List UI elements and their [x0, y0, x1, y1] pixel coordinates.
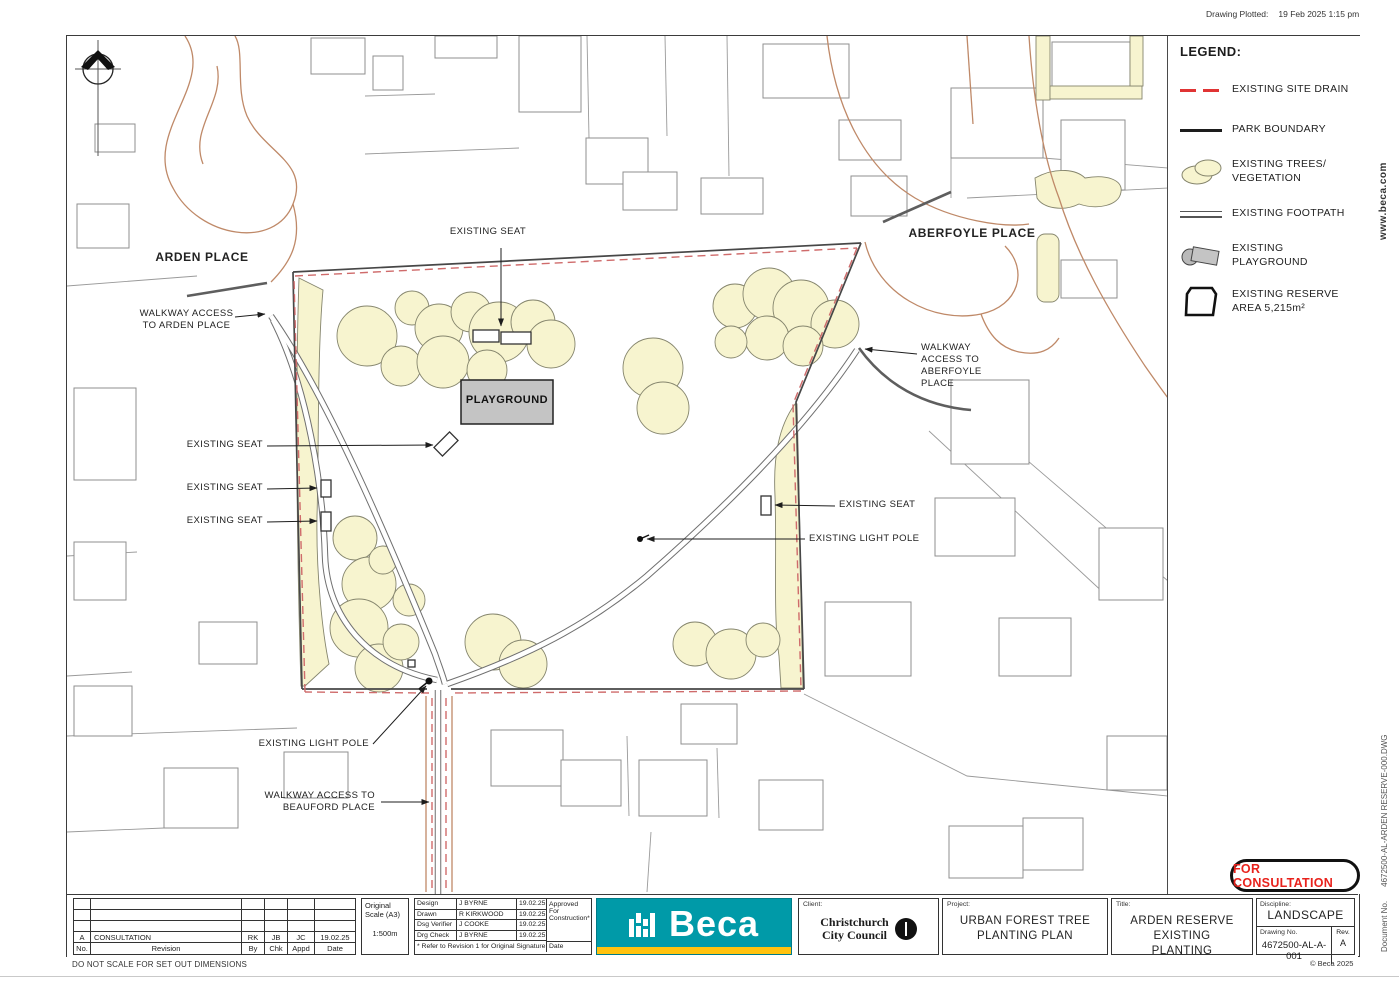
document-no-value: 4672500-AL-ARDEN RESERVE-000.DWG	[1380, 735, 1389, 887]
label-existing-seat-top: EXISTING SEAT	[438, 226, 538, 238]
document-no-label: Document No.	[1380, 901, 1389, 952]
scale-value: 1:500m	[365, 929, 405, 938]
legend-item-trees: EXISTING TREES/ VEGETATION	[1180, 157, 1361, 187]
label-walkway-beauford: WALKWAY ACCESS TO BEAUFORD PLACE	[245, 790, 375, 814]
beca-logo-mark-icon	[629, 911, 659, 943]
page-trim-line	[0, 976, 1399, 977]
sheet-frame: ARDEN PLACE ABERFOYLE PLACE EXISTING SEA…	[66, 35, 1360, 957]
rev-label: Rev.	[1334, 929, 1352, 936]
design-row-label: Design	[415, 899, 457, 910]
rev-a-date: 19.02.25	[315, 932, 355, 943]
discipline-box: Discipline: LANDSCAPE Drawing No. 467250…	[1256, 898, 1355, 955]
legend-label: EXISTING RESERVE AREA 5,215m²	[1232, 288, 1361, 315]
rev-a-appd: JC	[288, 932, 315, 943]
legend-item-footpath: EXISTING FOOTPATH	[1180, 201, 1361, 227]
trees-swatch-icon	[1180, 157, 1232, 187]
consultation-badge: FOR CONSULTATION	[1230, 859, 1360, 892]
label-walkway-aberfoyle: WALKWAY ACCESS TO ABERFOYLE PLACE	[921, 342, 993, 390]
rev-value: A	[1334, 938, 1352, 948]
legend-item-reserve-area: EXISTING RESERVE AREA 5,215m²	[1180, 285, 1361, 319]
plotted-label: Drawing Plotted:	[1206, 9, 1268, 19]
design-row-label: Drawn	[415, 910, 457, 921]
consultation-badge-text: FOR CONSULTATION	[1233, 862, 1357, 890]
reserve-area-swatch-icon	[1180, 285, 1232, 319]
design-row-name: J BYRNE	[457, 899, 517, 910]
design-row-label: Dsg Verifier	[415, 920, 457, 931]
title-box: Title: ARDEN RESERVE EXISTING PLANTING	[1111, 898, 1253, 955]
design-table: Design J BYRNE 19.02.25 Drawn R KIRKWOOD…	[414, 898, 592, 955]
legend-panel: LEGEND: EXISTING SITE DRAIN PARK BOUNDAR…	[1168, 36, 1361, 894]
plan-drawing	[67, 36, 1168, 894]
label-existing-light-pole-bottom: EXISTING LIGHT POLE	[243, 738, 369, 750]
approved-date-label: Date	[547, 942, 592, 954]
label-walkway-arden: WALKWAY ACCESS TO ARDEN PLACE	[139, 308, 234, 332]
building-outlines	[74, 36, 1167, 878]
label-existing-seat-left2: EXISTING SEAT	[163, 482, 263, 494]
playground-swatch-icon	[1180, 241, 1232, 271]
legend-item-playground: EXISTING PLAYGROUND	[1180, 241, 1361, 271]
beca-website-vertical: www.beca.com	[1378, 162, 1389, 240]
rev-h-chk: Chk	[265, 943, 288, 954]
legend-label: EXISTING TREES/ VEGETATION	[1232, 158, 1361, 185]
project-box: Project: URBAN FOREST TREE PLANTING PLAN	[942, 898, 1108, 955]
design-row-name: R KIRKWOOD	[457, 910, 517, 921]
design-row-name: J BYRNE	[457, 931, 517, 942]
design-row-date: 19.02.25	[517, 899, 547, 910]
design-footnote: * Refer to Revision 1 for Original Signa…	[415, 941, 547, 952]
do-not-scale-note: DO NOT SCALE FOR SET OUT DIMENSIONS	[72, 960, 247, 969]
approved-for-construction: Approved For Construction*	[547, 899, 592, 942]
legend-item-park-boundary: PARK BOUNDARY	[1180, 117, 1361, 143]
client-label: Client:	[803, 901, 934, 908]
legend-label: EXISTING FOOTPATH	[1232, 207, 1361, 221]
client-name: Christchurch City Council	[820, 916, 888, 941]
design-row-date: 19.02.25	[517, 920, 547, 931]
rev-a-desc: CONSULTATION	[91, 932, 242, 943]
label-existing-seat-left3: EXISTING SEAT	[163, 515, 263, 527]
client-name-line1: Christchurch	[820, 916, 888, 929]
legend-label: EXISTING PLAYGROUND	[1232, 242, 1361, 269]
scale-label: Original Scale (A3)	[365, 901, 405, 919]
label-existing-seat-right: EXISTING SEAT	[839, 499, 939, 511]
rev-a-no: A	[74, 932, 91, 943]
label-existing-light-pole-right: EXISTING LIGHT POLE	[809, 533, 939, 545]
rev-a-chk: JB	[265, 932, 288, 943]
legend-title: LEGEND:	[1180, 44, 1361, 59]
client-box: Client: Christchurch City Council	[798, 898, 939, 955]
project-name: URBAN FOREST TREE PLANTING PLAN	[950, 914, 1100, 944]
beca-logo-text: Beca	[669, 906, 759, 942]
plotted-timestamp: Drawing Plotted:19 Feb 2025 1:15 pm	[1206, 9, 1369, 19]
rev-h-by: By	[242, 943, 265, 954]
rev-h-appd: Appd	[288, 943, 315, 954]
design-row-date: 19.02.25	[517, 931, 547, 942]
discipline-value: LANDSCAPE	[1260, 908, 1351, 924]
title-block: A CONSULTATION RK JB JC 19.02.25 No. Rev…	[67, 894, 1358, 958]
document-no-vertical: Document No.4672500-AL-ARDEN RESERVE-000…	[1380, 735, 1389, 953]
legend-label: EXISTING SITE DRAIN	[1232, 83, 1361, 97]
design-row-date: 19.02.25	[517, 910, 547, 921]
site-plan-map: ARDEN PLACE ABERFOYLE PLACE EXISTING SEA…	[67, 36, 1168, 894]
rev-h-revision: Revision	[91, 943, 242, 954]
drawing-no-label: Drawing No.	[1260, 929, 1328, 936]
drawing-sheet-page: Drawing Plotted:19 Feb 2025 1:15 pm	[0, 0, 1399, 989]
footpath-swatch-icon	[1180, 207, 1232, 222]
title-label: Title:	[1116, 901, 1248, 908]
street-label-aberfoyle-place: ABERFOYLE PLACE	[905, 226, 1039, 241]
rev-a-by: RK	[242, 932, 265, 943]
client-name-line2: City Council	[820, 929, 888, 942]
park-boundary-swatch-icon	[1180, 129, 1232, 132]
label-playground: PLAYGROUND	[461, 394, 553, 406]
drawing-title: ARDEN RESERVE EXISTING PLANTING	[1122, 914, 1242, 959]
project-label: Project:	[947, 901, 1103, 908]
christchurch-city-council-logo-icon	[895, 918, 917, 940]
beca-yellow-strip	[597, 947, 791, 954]
copyright: © Beca 2025	[1310, 959, 1353, 968]
label-existing-seat-left1: EXISTING SEAT	[163, 439, 263, 451]
rev-h-no: No.	[74, 943, 91, 954]
scale-box: Original Scale (A3) 1:500m	[361, 898, 409, 955]
legend-item-site-drain: EXISTING SITE DRAIN	[1180, 77, 1361, 103]
rev-h-date: Date	[315, 943, 355, 954]
site-drain-swatch-icon	[1180, 89, 1232, 92]
street-label-arden-place: ARDEN PLACE	[152, 250, 252, 265]
beca-logo: Beca	[596, 898, 792, 955]
plotted-value: 19 Feb 2025 1:15 pm	[1278, 9, 1359, 19]
discipline-label: Discipline:	[1260, 901, 1351, 908]
revision-table: A CONSULTATION RK JB JC 19.02.25 No. Rev…	[73, 898, 356, 955]
legend-label: PARK BOUNDARY	[1232, 123, 1361, 137]
design-row-name: J COOKE	[457, 920, 517, 931]
design-row-label: Drg Check	[415, 931, 457, 942]
